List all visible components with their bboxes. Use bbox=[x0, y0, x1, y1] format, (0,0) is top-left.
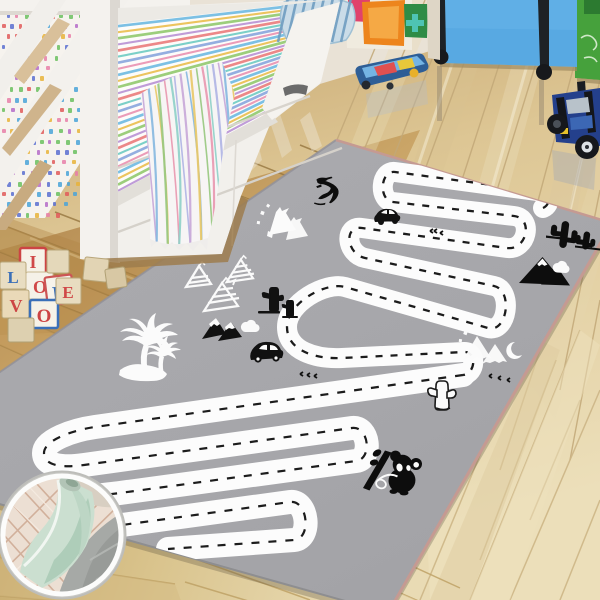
svg-text:L: L bbox=[7, 268, 18, 287]
svg-text:O: O bbox=[37, 306, 52, 327]
svg-text:I: I bbox=[29, 252, 36, 272]
svg-text:E: E bbox=[62, 283, 73, 302]
svg-text:V: V bbox=[10, 296, 23, 316]
